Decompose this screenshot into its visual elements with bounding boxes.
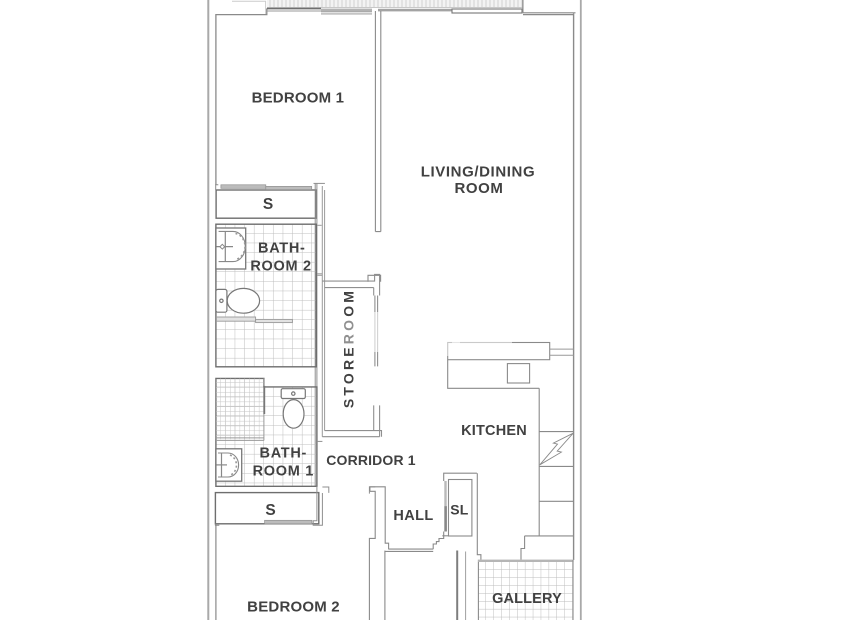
svg-text:HALL: HALL (393, 508, 433, 524)
svg-text:S: S (263, 196, 273, 213)
svg-text:SL: SL (450, 501, 469, 517)
svg-text:BATH-: BATH- (260, 446, 308, 462)
svg-text:BEDROOM 1: BEDROOM 1 (252, 89, 345, 106)
svg-text:CORRIDOR 1: CORRIDOR 1 (326, 452, 415, 468)
svg-text:GALLERY: GALLERY (492, 591, 562, 607)
svg-text:S: S (265, 502, 275, 519)
svg-text:ROOM 1: ROOM 1 (253, 463, 314, 479)
svg-text:BEDROOM 2: BEDROOM 2 (247, 598, 340, 615)
svg-text:ROOM: ROOM (454, 180, 503, 197)
svg-text:BATH-: BATH- (258, 241, 306, 257)
svg-text:STOREROOM: STOREROOM (341, 288, 357, 408)
svg-text:LIVING/DINING: LIVING/DINING (421, 163, 535, 180)
svg-text:KITCHEN: KITCHEN (461, 423, 527, 439)
svg-text:ROOM 2: ROOM 2 (250, 258, 311, 274)
